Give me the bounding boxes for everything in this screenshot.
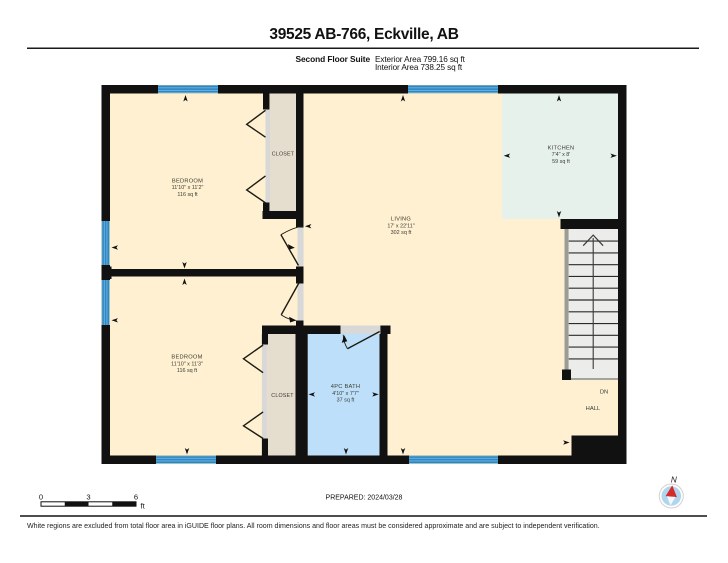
svg-text:4PC BATH: 4PC BATH [331, 384, 360, 390]
svg-text:HALL: HALL [586, 406, 601, 412]
svg-text:BEDROOM: BEDROOM [172, 178, 203, 184]
svg-text:302 sq ft: 302 sq ft [391, 230, 412, 236]
svg-text:White regions are excluded fro: White regions are excluded from total fl… [27, 523, 600, 530]
svg-text:17' x 22'11": 17' x 22'11" [387, 223, 414, 229]
svg-text:BEDROOM: BEDROOM [171, 355, 202, 361]
svg-text:11'10" x 11'3": 11'10" x 11'3" [171, 361, 203, 367]
svg-text:39525 AB-766, Eckville, AB: 39525 AB-766, Eckville, AB [269, 26, 458, 43]
svg-text:Interior Area 738.25 sq ft: Interior Area 738.25 sq ft [375, 63, 463, 72]
svg-text:116 sq ft: 116 sq ft [177, 368, 198, 374]
svg-text:CLOSET: CLOSET [272, 152, 295, 158]
svg-text:4'10" x 7'7": 4'10" x 7'7" [332, 391, 359, 397]
svg-text:37 sq ft: 37 sq ft [337, 398, 355, 404]
svg-text:116 sq ft: 116 sq ft [177, 192, 198, 198]
svg-text:59 sq ft: 59 sq ft [552, 159, 570, 165]
svg-text:PREPARED: 2024/03/28: PREPARED: 2024/03/28 [326, 495, 403, 502]
svg-text:Second Floor Suite: Second Floor Suite [295, 54, 370, 64]
svg-text:3: 3 [86, 493, 90, 502]
svg-text:11'10" x 11'2": 11'10" x 11'2" [172, 185, 204, 191]
svg-text:ft: ft [141, 502, 146, 511]
svg-text:0: 0 [39, 493, 43, 502]
svg-text:LIVING: LIVING [391, 217, 411, 223]
svg-text:6: 6 [134, 493, 138, 502]
svg-text:KITCHEN: KITCHEN [548, 145, 575, 151]
svg-text:DN: DN [600, 389, 608, 395]
svg-text:CLOSET: CLOSET [271, 393, 294, 399]
svg-text:N: N [671, 476, 677, 485]
svg-text:7'4" x 8': 7'4" x 8' [552, 152, 571, 158]
